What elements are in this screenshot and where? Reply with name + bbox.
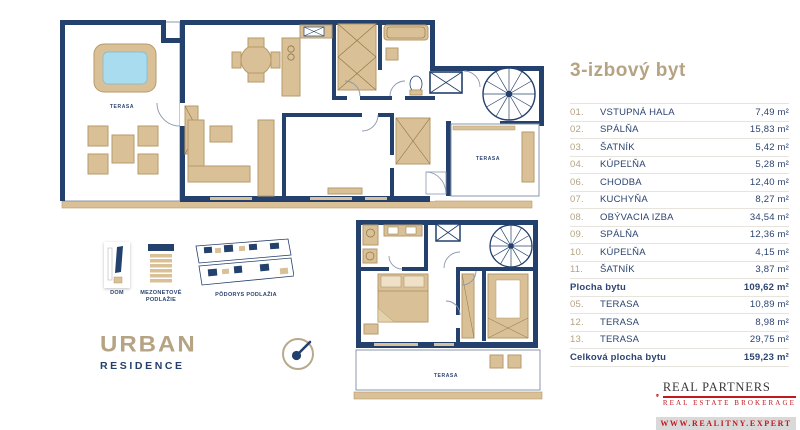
- row-number: 06.: [570, 177, 600, 188]
- shower-icon: [426, 172, 446, 194]
- urban-wordmark: URBAN: [100, 334, 200, 356]
- room-label: SPÁLŇA: [600, 229, 750, 240]
- mezzanine-icon: [148, 244, 174, 286]
- reb-shield-icon: REB: [656, 376, 659, 415]
- room-label: TERASA: [600, 334, 750, 345]
- kitchen-island: [282, 38, 300, 96]
- legend-label-floorplan: PÔDORYS PODLAŽIA: [206, 292, 286, 299]
- room-label: CHODBA: [600, 177, 750, 188]
- table-row: 06. CHODBA 12,40 m²: [570, 173, 789, 191]
- room-area: 5,28 m²: [755, 159, 789, 170]
- table-row: 02. SPÁLŇA 15,83 m²: [570, 121, 789, 139]
- area-table: 01. VSTUPNÁ HALA 7,49 m² 02. SPÁLŇA 15,8…: [570, 103, 789, 367]
- table-row: 09. SPÁLŇA 12,36 m²: [570, 226, 789, 244]
- row-number: 07.: [570, 194, 600, 205]
- bedroom-wardrobe: [396, 118, 430, 164]
- room-area: 12,40 m²: [750, 177, 789, 188]
- room-label: KÚPEĽŇA: [600, 159, 755, 170]
- total-area: 159,23 m²: [744, 352, 789, 363]
- room-area: 29,75 m²: [750, 334, 789, 345]
- row-number: 03.: [570, 142, 600, 153]
- room-area: 8,27 m²: [755, 194, 789, 205]
- terrace-label: TERASA: [476, 156, 500, 162]
- total-label: Celková plocha bytu: [570, 352, 744, 363]
- building-floorplan-thumbnail: [194, 238, 294, 288]
- tv-wall-unit: [258, 120, 274, 196]
- washer-icon: [363, 249, 377, 263]
- row-number: 13.: [570, 334, 600, 345]
- room-label: VSTUPNÁ HALA: [600, 107, 755, 118]
- table-row: 04. KÚPEĽŇA 5,28 m²: [570, 156, 789, 174]
- double-bed-icon: [378, 274, 428, 322]
- room-label: ŠATNÍK: [600, 264, 755, 275]
- realtor-website: WWW.REALITNY.EXPERT: [656, 417, 796, 430]
- compass-icon: [276, 332, 320, 376]
- spiral-staircase-icon: [490, 225, 532, 267]
- row-number: 08.: [570, 212, 600, 223]
- room-area: 15,83 m²: [750, 124, 789, 135]
- room-area: 3,87 m²: [755, 264, 789, 275]
- wardrobes: [462, 274, 528, 338]
- floorplan-upper: TERASA: [60, 8, 548, 210]
- legend-label-mezzanine: MEZONETOVÉ PODLAŽIE: [138, 290, 184, 304]
- realtor-tagline: REAL ESTATE BROKERAGE: [663, 399, 796, 407]
- urban-residence-logo: URBAN RESIDENCE: [100, 334, 200, 372]
- window-sills: [374, 343, 454, 346]
- table-row: 05. TERASA 10,89 m²: [570, 296, 789, 314]
- terrace-left: TERASA: [60, 20, 183, 201]
- residence-wordmark: RESIDENCE: [100, 360, 200, 372]
- table-row: 12. TERASA 8,98 m²: [570, 313, 789, 331]
- terrace-label: TERASA: [434, 373, 458, 379]
- washer-icon: [386, 48, 398, 60]
- room-area: 4,15 m²: [755, 247, 789, 258]
- elevator-icon: [436, 224, 460, 241]
- coffee-table-icon: [210, 126, 232, 142]
- room-label: SPÁLŇA: [600, 124, 750, 135]
- subtotal-area: 109,62 m²: [744, 282, 789, 293]
- row-number: 10.: [570, 247, 600, 258]
- row-number: 05.: [570, 299, 600, 310]
- terrace-right: TERASA: [451, 124, 539, 196]
- jacuzzi-icon: [94, 44, 156, 92]
- row-number: 09.: [570, 229, 600, 240]
- legend-label-dom: DOM: [96, 290, 138, 297]
- room-area: 12,36 m²: [750, 229, 789, 240]
- elevator-icon: [430, 72, 462, 93]
- room-label: KÚPEĽŇA: [600, 247, 755, 258]
- table-row: 13. TERASA 29,75 m²: [570, 331, 789, 349]
- realtor-name: REAL PARTNERS: [663, 380, 796, 395]
- row-number: 11.: [570, 264, 600, 275]
- floorplan-lower: TERASA: [348, 212, 548, 404]
- room-label: TERASA: [600, 317, 755, 328]
- room-area: 10,89 m²: [750, 299, 789, 310]
- row-number: 12.: [570, 317, 600, 328]
- sink-icon: [363, 225, 378, 245]
- house-icon: [104, 242, 130, 288]
- room-area: 8,98 m²: [755, 317, 789, 328]
- terrace-label: TERASA: [110, 104, 134, 110]
- room-label: KUCHYŇA: [600, 194, 755, 205]
- subtotal-label: Plocha bytu: [570, 282, 744, 293]
- table-row-total: Celková plocha bytu 159,23 m²: [570, 348, 789, 366]
- table-row: 07. KUCHYŇA 8,27 m²: [570, 191, 789, 209]
- room-label: OBÝVACIA IZBA: [600, 212, 750, 223]
- table-row: 10. KÚPEĽŇA 4,15 m²: [570, 243, 789, 261]
- row-number: 02.: [570, 124, 600, 135]
- spiral-staircase-icon: [483, 68, 535, 120]
- table-row-subtotal: Plocha bytu 109,62 m²: [570, 278, 789, 296]
- wardrobe-icon: [338, 24, 376, 90]
- facade-strip: [62, 201, 532, 208]
- dining-table-icon: [241, 45, 271, 75]
- terrace-bottom: TERASA: [356, 350, 540, 390]
- room-label: ŠATNÍK: [600, 142, 755, 153]
- table-row: 01. VSTUPNÁ HALA 7,49 m²: [570, 103, 789, 121]
- real-partners-logo: REB REAL PARTNERS REAL ESTATE BROKERAGE …: [656, 376, 796, 430]
- row-number: 01.: [570, 107, 600, 118]
- room-label: TERASA: [600, 299, 750, 310]
- facade-strip: [354, 392, 542, 399]
- room-area: 7,49 m²: [755, 107, 789, 118]
- nightstand-icon: [364, 324, 378, 334]
- divider: [663, 396, 796, 398]
- table-row: 03. ŠATNÍK 5,42 m²: [570, 138, 789, 156]
- legend: DOM MEZONETOVÉ PODLAŽIE PÔDORYS PODLAŽIA: [98, 238, 298, 308]
- room-area: 5,42 m²: [755, 142, 789, 153]
- walk-in-closet: [338, 24, 376, 90]
- table-row: 08. OBÝVACIA IZBA 34,54 m²: [570, 208, 789, 226]
- row-number: 04.: [570, 159, 600, 170]
- room-area: 34,54 m²: [750, 212, 789, 223]
- table-row: 11. ŠATNÍK 3,87 m²: [570, 261, 789, 279]
- page-title: 3-izbový byt: [570, 60, 686, 82]
